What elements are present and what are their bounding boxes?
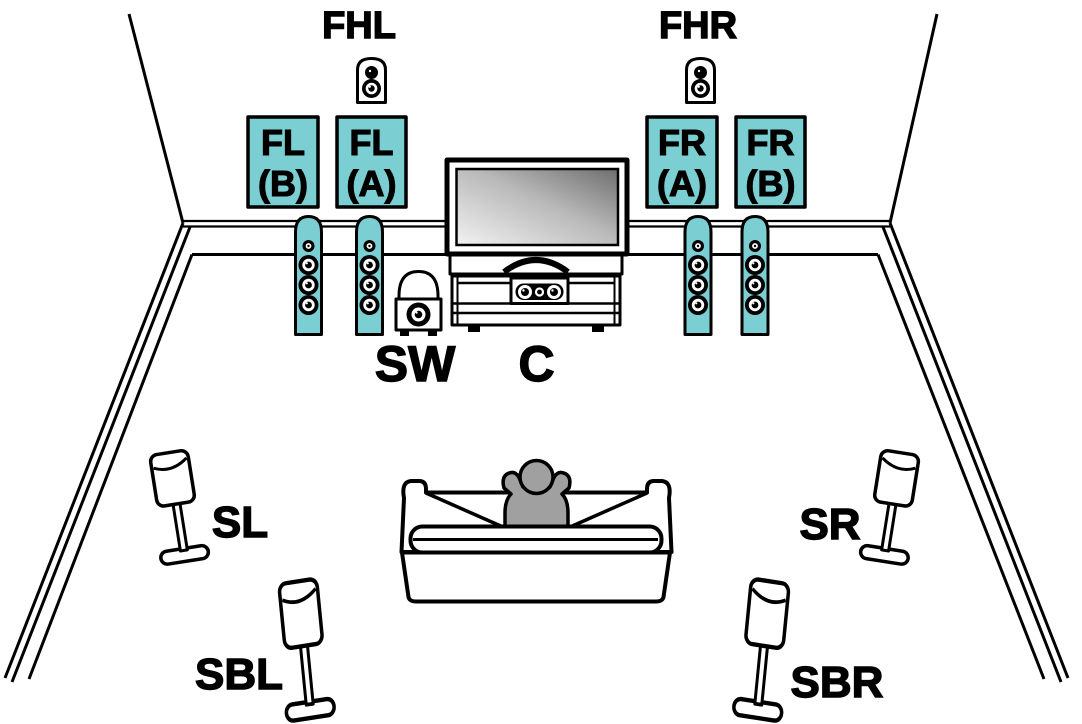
- label-sr: SR: [799, 500, 860, 549]
- right-wall-corner-line: [890, 14, 937, 223]
- label-sl: SL: [212, 498, 268, 547]
- label-c: C: [518, 336, 554, 392]
- label-fl-a-line2: (A): [347, 163, 397, 204]
- label-fl-b-line2: (B): [258, 163, 308, 204]
- label-sbl: SBL: [195, 650, 283, 699]
- tower-speaker-fr-b-icon: [742, 217, 768, 335]
- rack-foot-right: [592, 325, 604, 332]
- label-fr-b-line1: FR: [747, 122, 795, 163]
- subwoofer-icon: [396, 272, 441, 337]
- front-height-left-speaker-icon: [358, 59, 386, 103]
- rack-foot-left: [468, 325, 480, 332]
- label-fr-a-line2: (A): [657, 163, 707, 204]
- tv-screen: [457, 169, 619, 245]
- surround-left-speaker-icon: [145, 449, 210, 565]
- left-wall-corner-line: [129, 14, 183, 223]
- tower-speaker-fl-b-icon: [296, 217, 322, 335]
- sofa-and-listener: [402, 461, 672, 602]
- tv-and-rack: [447, 160, 627, 332]
- label-fhl: FHL: [322, 5, 396, 47]
- sofa-base: [402, 553, 670, 602]
- label-fr-b-line2: (B): [746, 163, 796, 204]
- label-fr-a-line1: FR: [658, 122, 706, 163]
- tower-speaker-fl-a-icon: [357, 217, 383, 335]
- front-height-right-speaker-icon: [687, 59, 715, 103]
- label-fhr: FHR: [659, 5, 737, 47]
- surround-back-right-speaker-icon: [733, 578, 794, 722]
- label-fl-b-line1: FL: [261, 122, 305, 163]
- center-speaker-icon: [511, 278, 568, 304]
- listener-head: [520, 461, 553, 494]
- surround-right-speaker-icon: [860, 449, 925, 565]
- tower-speaker-fr-a-icon: [685, 217, 711, 335]
- label-fl-a-line1: FL: [350, 122, 394, 163]
- diagram-canvas: FL (B) FL (A) FR (A) FR (B) FHL FHR SW C…: [0, 0, 1082, 724]
- label-sw: SW: [375, 336, 456, 392]
- label-sbr: SBR: [791, 658, 884, 707]
- speaker-layout-diagram: FL (B) FL (A) FR (A) FR (B) FHL FHR SW C…: [0, 0, 1082, 724]
